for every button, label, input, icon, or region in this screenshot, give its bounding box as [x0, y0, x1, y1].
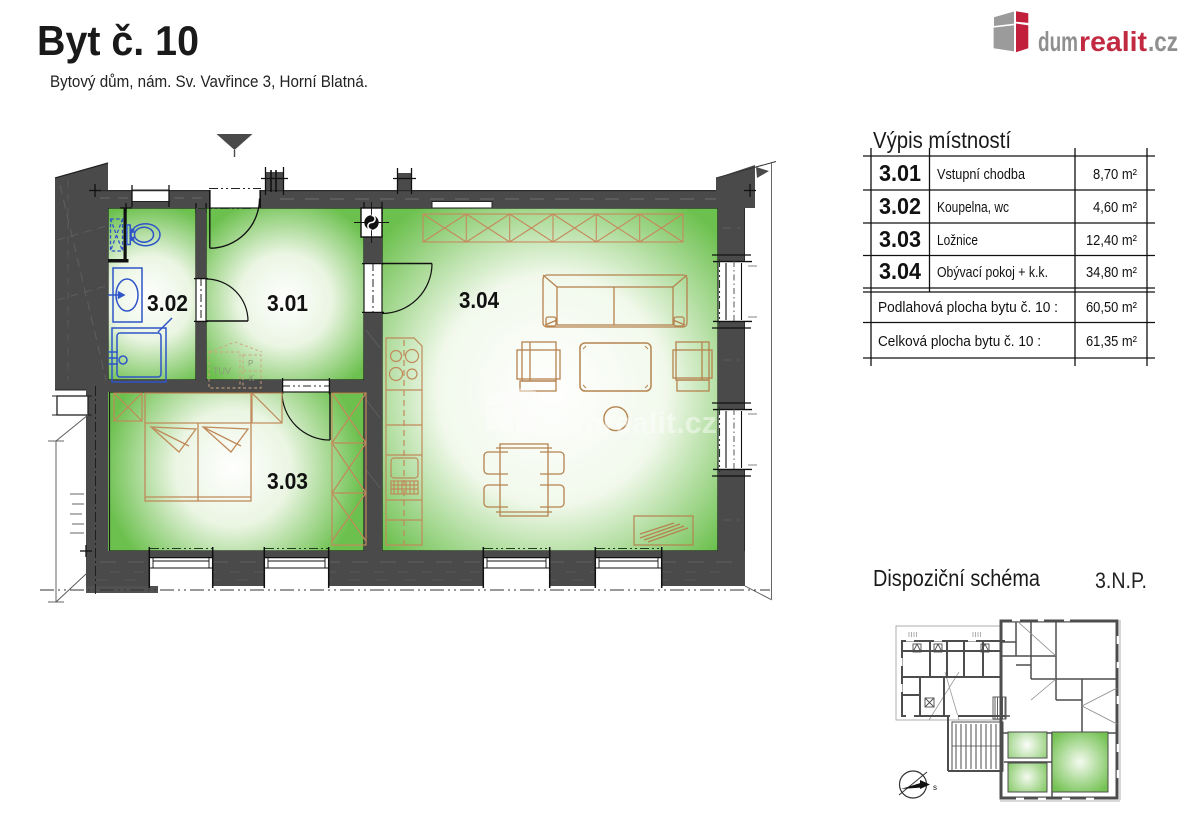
svg-text:K: K	[249, 374, 255, 383]
svg-text:s: s	[933, 783, 937, 792]
svg-text:4,60 m²: 4,60 m²	[1093, 200, 1137, 216]
svg-text:60,50 m²: 60,50 m²	[1086, 300, 1137, 316]
svg-text:34,80 m²: 34,80 m²	[1086, 265, 1137, 281]
svg-text:realit: realit	[1079, 26, 1147, 57]
svg-text:3.02: 3.02	[147, 290, 188, 316]
svg-text:Ložnice: Ložnice	[937, 233, 978, 249]
svg-text:Vstupní chodba: Vstupní chodba	[937, 167, 1026, 183]
svg-text:3.03: 3.03	[267, 468, 308, 494]
svg-text:Výpis místností: Výpis místností	[873, 127, 1012, 153]
svg-text:3.02: 3.02	[879, 193, 921, 219]
svg-text:12,40 m²: 12,40 m²	[1086, 233, 1137, 249]
svg-text:.cz: .cz	[1148, 26, 1178, 57]
svg-text:3.04: 3.04	[459, 287, 499, 313]
svg-text:3.01: 3.01	[879, 160, 921, 186]
svg-text:3.01: 3.01	[267, 290, 308, 316]
svg-text:61,35 m²: 61,35 m²	[1086, 334, 1137, 350]
svg-text:3.N.P.: 3.N.P.	[1095, 568, 1147, 593]
svg-text:3.03: 3.03	[879, 226, 921, 252]
svg-text:dum: dum	[1038, 26, 1078, 57]
svg-text:Dispoziční schéma: Dispoziční schéma	[873, 565, 1040, 591]
svg-text:dumrealit.cz: dumrealit.cz	[538, 405, 717, 440]
svg-text:Bytový dům, nám. Sv. Vavřince: Bytový dům, nám. Sv. Vavřince 3, Horní B…	[50, 72, 368, 91]
svg-text:TUV: TUV	[213, 366, 231, 376]
svg-text:Byt č. 10: Byt č. 10	[37, 17, 199, 64]
svg-text:Koupelna, wc: Koupelna, wc	[937, 200, 1009, 216]
svg-text:Podlahová plocha bytu č. 10 :: Podlahová plocha bytu č. 10 :	[878, 300, 1058, 316]
svg-text:P: P	[248, 359, 253, 368]
svg-text:8,70 m²: 8,70 m²	[1093, 167, 1137, 183]
svg-text:3.04: 3.04	[879, 258, 921, 284]
svg-text:Obývací pokoj + k.k.: Obývací pokoj + k.k.	[937, 265, 1048, 281]
svg-text:Celková plocha bytu č. 10 :: Celková plocha bytu č. 10 :	[878, 334, 1041, 350]
